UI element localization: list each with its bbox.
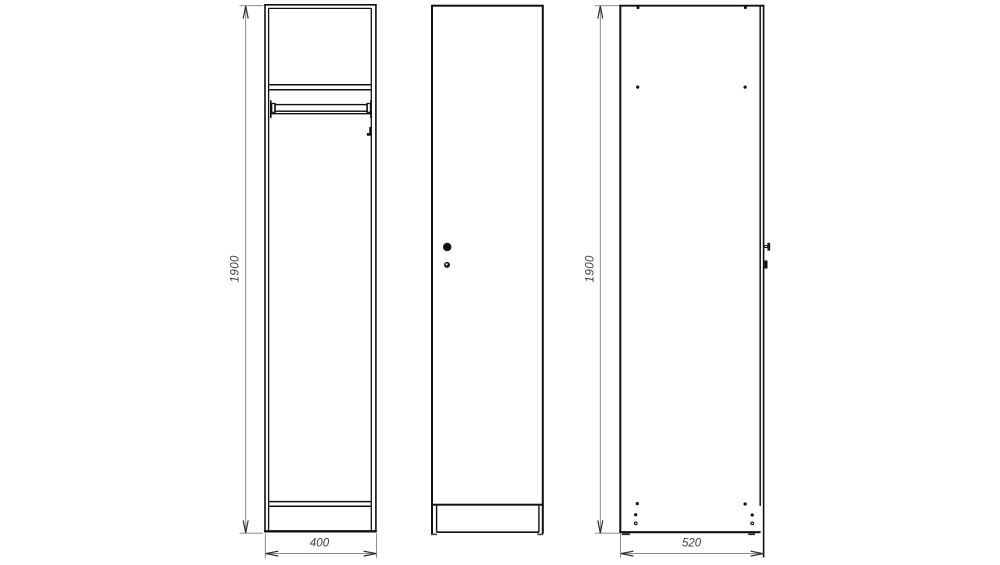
svg-text:400: 400 bbox=[310, 537, 330, 549]
svg-text:1900: 1900 bbox=[230, 255, 242, 283]
svg-text:520: 520 bbox=[682, 537, 702, 549]
svg-text:1900: 1900 bbox=[585, 255, 597, 283]
